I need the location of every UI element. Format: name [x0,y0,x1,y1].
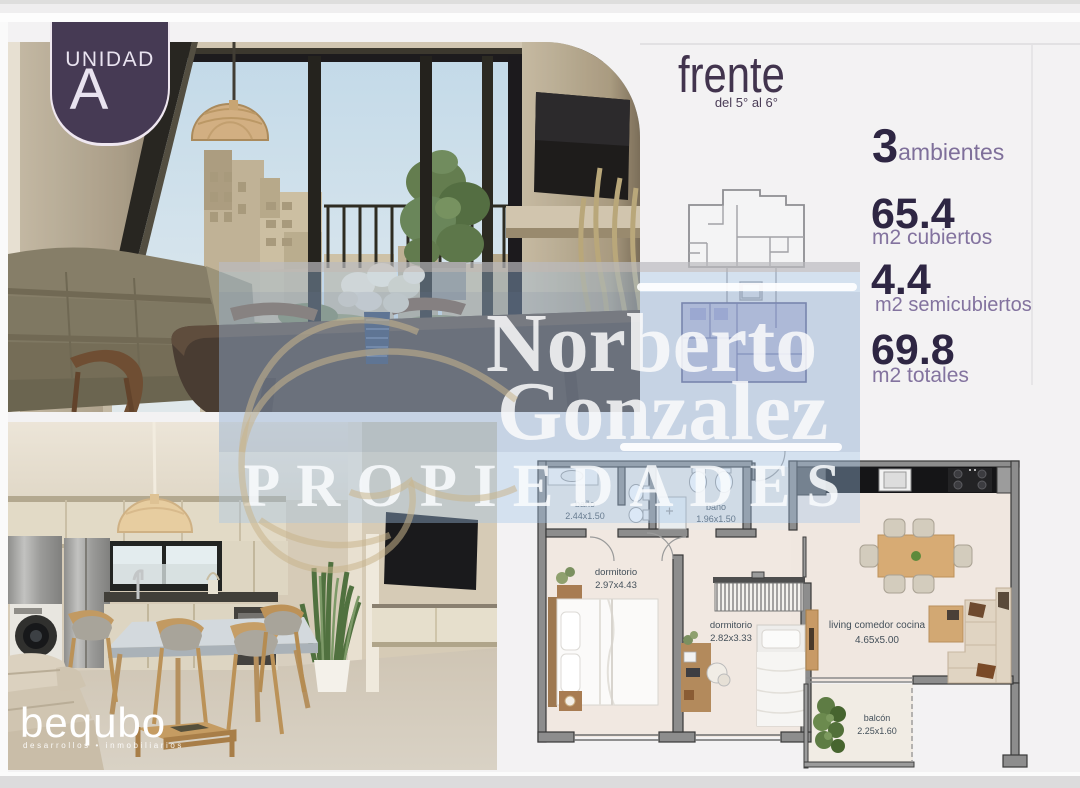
svg-text:living comedor cocina: living comedor cocina [829,620,926,631]
svg-text:1.96x1.50: 1.96x1.50 [696,514,736,524]
svg-text:2.82x3.33: 2.82x3.33 [710,633,752,644]
svg-text:4.65x5.00: 4.65x5.00 [855,635,899,646]
svg-text:baño: baño [706,502,726,512]
svg-text:2.44x1.50: 2.44x1.50 [565,511,605,521]
svg-text:desarrollos • inmobiliarios: desarrollos • inmobiliarios [23,741,184,750]
svg-text:balcón: balcón [864,713,891,723]
svg-text:bequbo: bequbo [20,699,166,746]
svg-text:dormitorio: dormitorio [710,620,752,631]
svg-text:baño: baño [575,499,595,509]
svg-text:2.97x4.43: 2.97x4.43 [595,580,637,591]
svg-text:dormitorio: dormitorio [595,567,637,578]
svg-text:2.25x1.60: 2.25x1.60 [857,726,897,736]
